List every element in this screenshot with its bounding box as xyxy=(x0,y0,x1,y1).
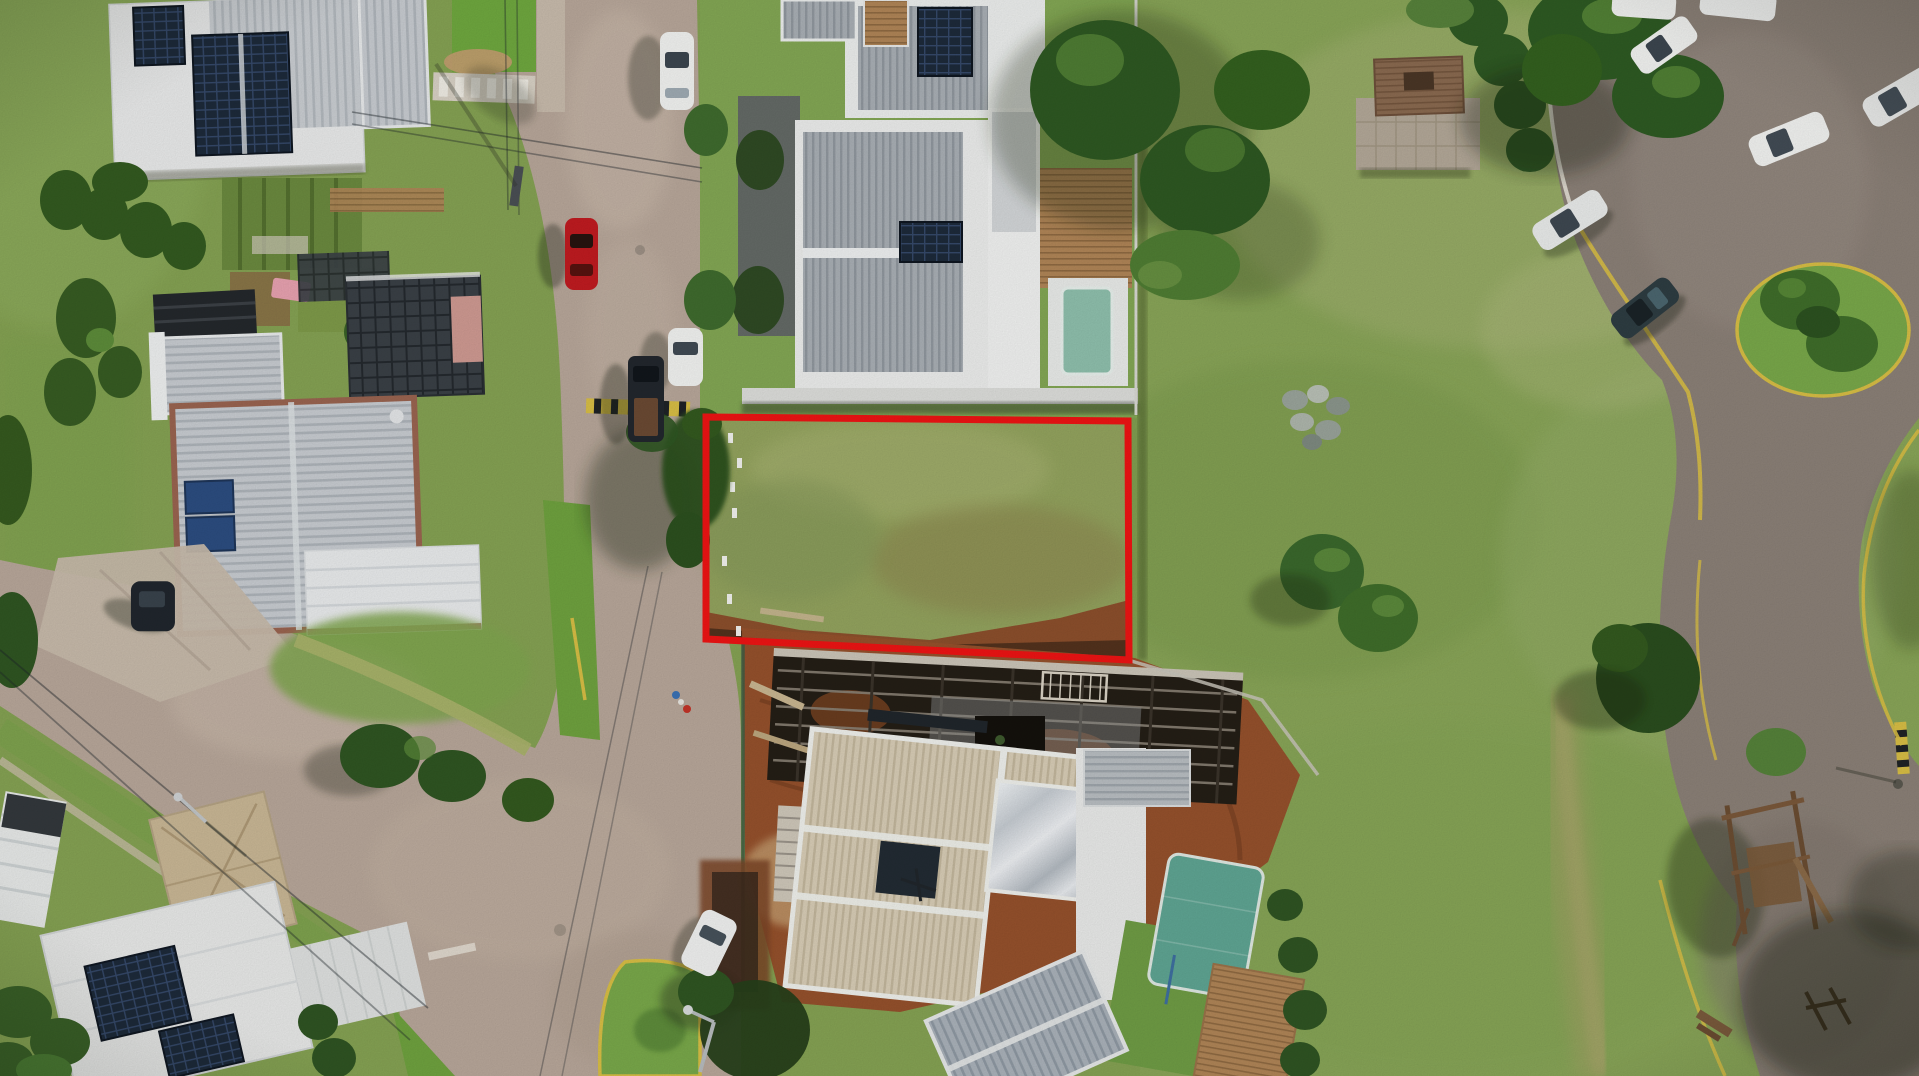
aerial-photo-canvas xyxy=(0,0,1919,1076)
vignette xyxy=(0,0,1919,1076)
aerial-photo xyxy=(0,0,1919,1076)
